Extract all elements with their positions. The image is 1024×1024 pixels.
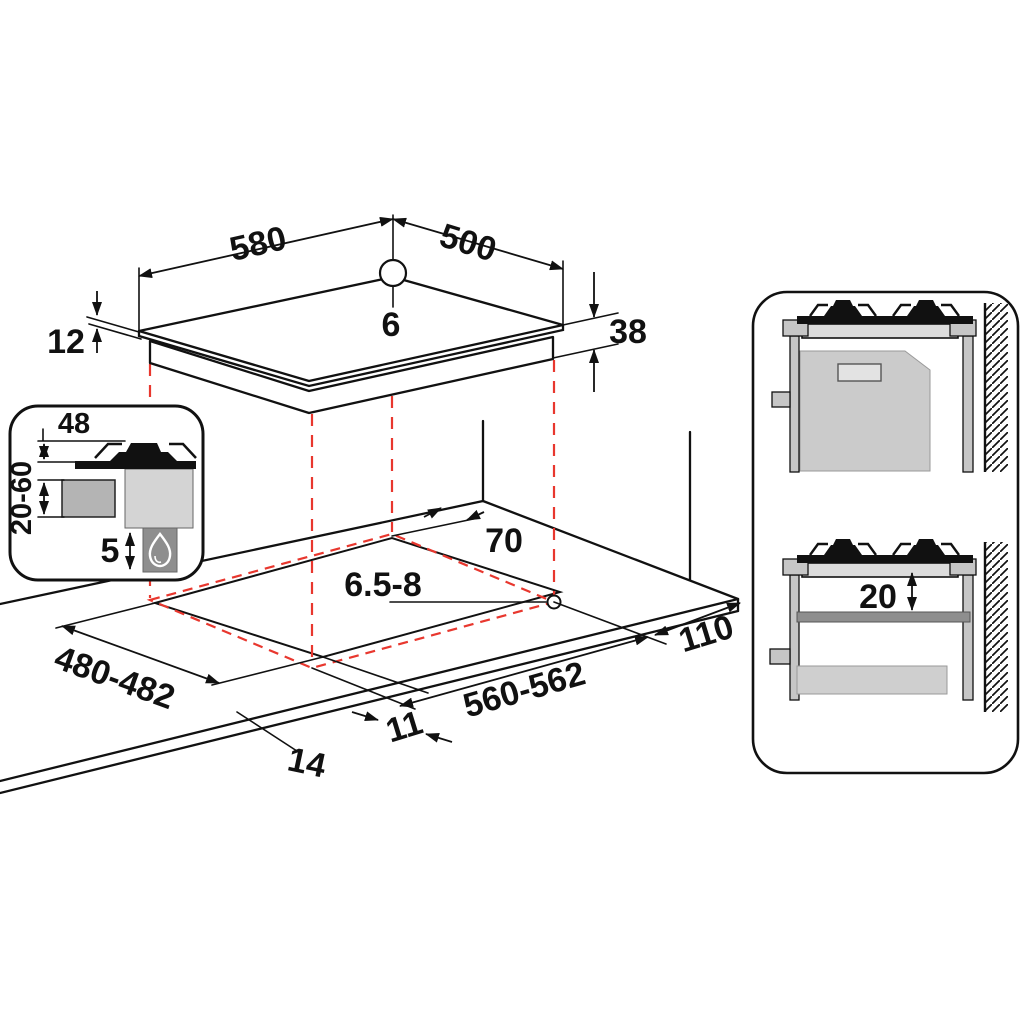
- inset-detail-box: 48 20-60 5: [6, 406, 203, 580]
- dim-fixing-hole-label: 6.5-8: [344, 566, 422, 604]
- arrow-11-b: [426, 734, 452, 742]
- reference-hole-circle: [380, 260, 406, 286]
- dim-cutout-width-label: 560-562: [459, 655, 589, 726]
- wall-hatch-icon-2: [986, 542, 1008, 712]
- inset-burner-knob: [126, 443, 161, 452]
- cabinet-post-right-top: [963, 336, 973, 472]
- worktop-bar-bottom: [802, 563, 958, 577]
- dim-glass-thickness-label: 12: [47, 323, 85, 361]
- section-above-oven: [772, 300, 1008, 472]
- cabinet-post-left-top: [790, 336, 799, 472]
- dim-cutout-depth-label: 480-482: [50, 639, 180, 717]
- cabinet-post-right-bottom: [963, 575, 973, 700]
- hob-top-view: [139, 215, 563, 413]
- dim-hob-width-label: 580: [226, 219, 290, 269]
- drawer-front: [797, 666, 947, 694]
- ext-480-a: [56, 603, 155, 628]
- inset-burner-body: [125, 469, 193, 528]
- dim-side-clearance-label: 110: [675, 608, 739, 660]
- svg-text:11: 11: [382, 704, 427, 751]
- dim-hole-diameter-label: 6: [382, 306, 401, 344]
- ext-glass-top: [87, 317, 139, 332]
- dim-wall-clearance-label: 70: [485, 522, 523, 560]
- dim-gap-front-label: 11: [382, 704, 427, 751]
- arrow-11-a: [352, 712, 378, 720]
- svg-text:580: 580: [226, 219, 290, 269]
- hob-bar-bottom: [797, 555, 973, 563]
- cabinet-tab-top: [772, 392, 790, 407]
- hob-bar-top: [797, 316, 973, 324]
- ext-110: [554, 602, 666, 644]
- dim-bottom-gap-label: 5: [101, 532, 120, 570]
- dim-hob-depth-label: 500: [435, 217, 500, 270]
- svg-text:14: 14: [284, 740, 329, 785]
- ext-480-b: [212, 657, 323, 685]
- side-view-panel: 20: [753, 292, 1018, 773]
- worktop-front-edge-bottom: [0, 611, 738, 793]
- inset-glass-bar: [75, 461, 196, 469]
- worktop-bar-top: [802, 324, 958, 338]
- ext-cutout-back: [392, 518, 478, 536]
- svg-text:500: 500: [435, 217, 500, 270]
- gas-hob-installation-diagram: 580 500 6 12 38 70 6.5-8 480-482: [0, 0, 1024, 1024]
- cabinet-tab-bottom: [770, 649, 790, 664]
- inset-burner-cap: [110, 452, 177, 461]
- dim-burner-height-label: 48: [58, 408, 90, 440]
- wall-hatch-icon: [986, 303, 1008, 472]
- svg-text:110: 110: [675, 608, 739, 660]
- dim-cabinet-clearance-label: 20-60: [6, 461, 38, 535]
- inset-cabinet-block: [62, 480, 115, 517]
- oven-vent: [838, 364, 881, 381]
- dim-hob-height-label: 38: [609, 313, 647, 351]
- diagram-page: 580 500 6 12 38 70 6.5-8 480-482: [0, 0, 1024, 1024]
- svg-text:20-60: 20-60: [6, 461, 38, 535]
- svg-text:480-482: 480-482: [50, 639, 180, 717]
- svg-text:560-562: 560-562: [459, 655, 589, 726]
- dim-shelf-clearance-label: 20: [859, 578, 897, 616]
- dim-gap-side-label: 14: [284, 740, 329, 785]
